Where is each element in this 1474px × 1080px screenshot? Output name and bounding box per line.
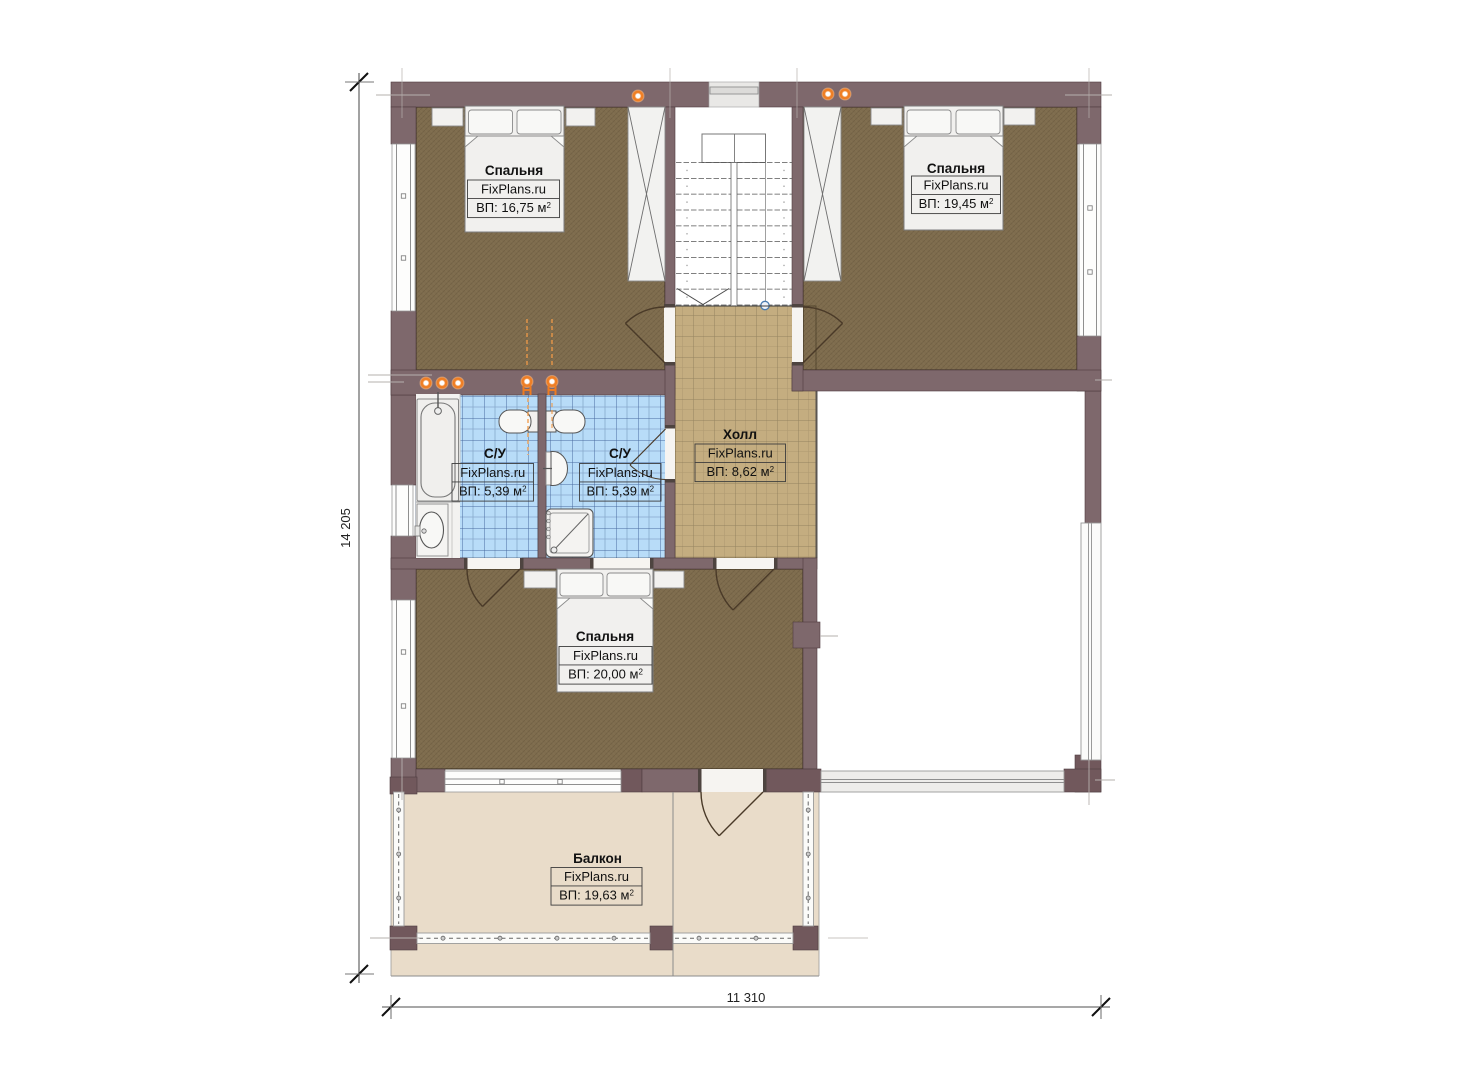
- svg-text:FixPlans.ru: FixPlans.ru: [923, 177, 988, 192]
- svg-text:ВП: 19,45 м2: ВП: 19,45 м2: [919, 196, 994, 211]
- svg-text:11 310: 11 310: [727, 990, 766, 1005]
- svg-text:FixPlans.ru: FixPlans.ru: [481, 181, 546, 196]
- svg-text:Спальня: Спальня: [576, 629, 634, 644]
- svg-text:FixPlans.ru: FixPlans.ru: [573, 648, 638, 663]
- svg-text:ВП: 5,39 м2: ВП: 5,39 м2: [586, 484, 654, 499]
- svg-text:ВП: 8,62 м2: ВП: 8,62 м2: [706, 464, 774, 479]
- svg-text:ВП: 19,63 м2: ВП: 19,63 м2: [559, 888, 634, 903]
- svg-text:ВП: 16,75 м2: ВП: 16,75 м2: [476, 200, 551, 215]
- svg-text:ВП: 5,39 м2: ВП: 5,39 м2: [459, 484, 527, 499]
- svg-text:FixPlans.ru: FixPlans.ru: [460, 465, 525, 480]
- svg-text:FixPlans.ru: FixPlans.ru: [588, 465, 653, 480]
- svg-text:С/У: С/У: [609, 446, 632, 461]
- svg-text:Балкон: Балкон: [573, 851, 622, 866]
- svg-text:ВП: 20,00 м2: ВП: 20,00 м2: [568, 667, 643, 682]
- svg-text:FixPlans.ru: FixPlans.ru: [564, 869, 629, 884]
- svg-text:14 205: 14 205: [338, 508, 353, 548]
- svg-text:Холл: Холл: [723, 427, 757, 442]
- svg-text:С/У: С/У: [484, 446, 507, 461]
- svg-text:Спальня: Спальня: [927, 161, 985, 176]
- svg-text:FixPlans.ru: FixPlans.ru: [708, 445, 773, 460]
- svg-text:Спальня: Спальня: [485, 163, 543, 178]
